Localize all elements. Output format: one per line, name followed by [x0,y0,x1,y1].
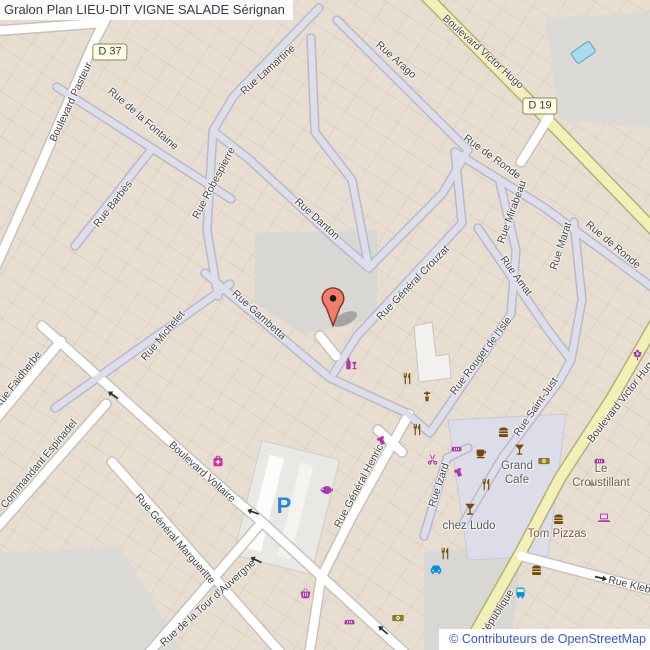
osm-attribution-link[interactable]: © Contributeurs de OpenStreetMap [439,629,650,650]
map-canvas[interactable]: Boulevard PasteurRue de la FontaineRue L… [0,0,650,650]
page-title: Gralon Plan LIEU-DIT VIGNE SALADE Sérign… [0,0,293,20]
map-basemap [0,0,650,650]
